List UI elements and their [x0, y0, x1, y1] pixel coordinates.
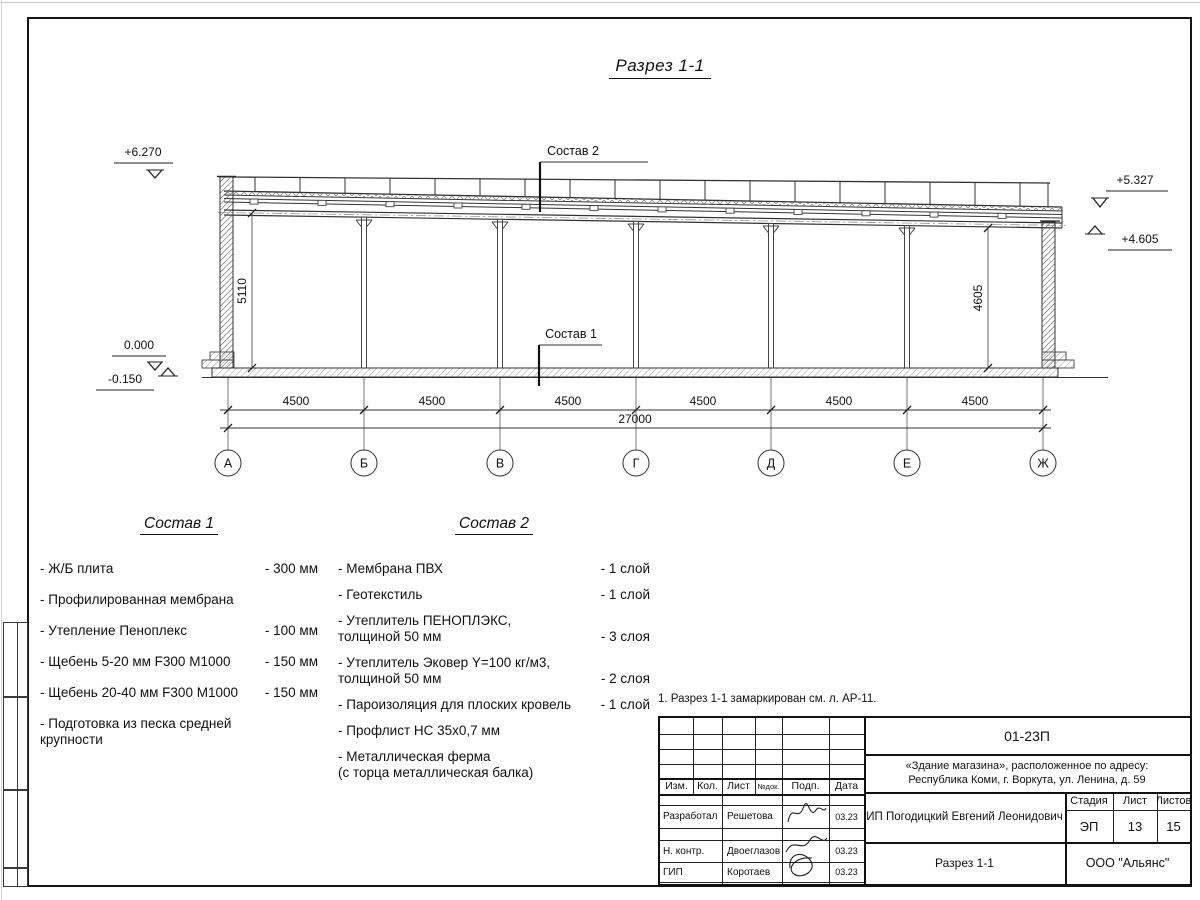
company-name: ООО "Альянс" — [1065, 842, 1190, 884]
col-data: Дата — [829, 778, 864, 794]
row-role: Разработал — [660, 805, 725, 828]
list-item: - Металлическая ферма (с торца металличе… — [338, 749, 650, 781]
dim-bay: 4500 — [690, 394, 717, 408]
columns — [356, 217, 915, 368]
drawing-sheet: Разрез 1-1 — [0, 0, 1200, 900]
list-item: - Ж/Б плита- 300 мм — [40, 561, 318, 577]
height-dimensions: 5110 4605 — [235, 209, 992, 372]
margin-box — [3, 868, 28, 887]
leader-label-sostav2: Состав 2 — [547, 144, 599, 158]
list-item: - Утепление Пеноплекс- 100 мм — [40, 623, 318, 639]
stage-value: ЭП — [1065, 810, 1113, 842]
dim-total: 27000 — [618, 412, 652, 426]
dim-right-height: 4605 — [971, 284, 985, 311]
col-list: Лист — [722, 778, 755, 794]
dim-bay: 4500 — [826, 394, 853, 408]
list-item: - Профилированная мембрана — [40, 592, 318, 608]
dim-left-height: 5110 — [235, 278, 249, 304]
row-date: 03.23 — [829, 805, 864, 828]
dim-bay: 4500 — [962, 394, 989, 408]
col-kol: Кол. — [693, 778, 722, 794]
row-name: Двоеглазов — [724, 840, 785, 862]
list-item: - Щебень 5-20 мм F300 М1000- 150 мм — [40, 654, 318, 670]
row-role: Н. контр. — [660, 840, 725, 862]
axis-label: В — [496, 457, 504, 471]
list-item: - Подготовка из песка средней крупности — [40, 716, 318, 748]
object-address-line2: Республика Коми, г. Воркута, ул. Ленина,… — [908, 773, 1145, 788]
list-item: - Геотекстиль- 1 слой — [338, 587, 650, 603]
roof-deck — [218, 191, 1066, 228]
client-name: ИП Погодицкий Евгений Леонидович — [864, 792, 1065, 842]
list-item: - Утеплитель ПЕНОПЛЭКС, толщиной 50 мм- … — [338, 613, 650, 645]
dim-bay: 4500 — [555, 394, 582, 408]
axis-label: Д — [767, 457, 776, 471]
list-item: - Утеплитель Эковер Y=100 кг/м3, толщино… — [338, 655, 650, 687]
axis-label: Е — [903, 457, 911, 471]
svg-text:+4.605: +4.605 — [1121, 232, 1158, 246]
sheets-label: Листов — [1157, 792, 1190, 810]
axis-label: Г — [633, 457, 640, 471]
elevation-ground: -0.150 — [96, 368, 178, 390]
col-izm: Изм. — [660, 778, 693, 794]
sheets-value: 15 — [1157, 810, 1190, 842]
margin-box — [3, 697, 28, 790]
row-name: Коротаев — [724, 862, 785, 882]
axis-label: А — [224, 457, 233, 471]
row-role: ГИП — [660, 862, 725, 882]
list-item: - Щебень 20-40 мм F300 М1000- 150 мм — [40, 685, 318, 701]
elevation-floor: 0.000 — [112, 338, 166, 370]
axis-bubbles: А Б В Г Д Е Ж — [215, 450, 1056, 476]
elevation-roof-right: +5.327 — [1091, 173, 1168, 207]
composition-1-title: Состав 1 — [40, 516, 318, 535]
row-date: 03.23 — [829, 862, 864, 882]
dim-bay: 4500 — [283, 394, 310, 408]
svg-text:+6.270: +6.270 — [124, 145, 161, 159]
dim-bay: 4500 — [419, 394, 446, 408]
leader-label-sostav1: Состав 1 — [545, 327, 597, 341]
margin-box — [3, 622, 28, 697]
list-item: - Мембрана ПВХ- 1 слой — [338, 561, 650, 577]
sheet-title: Разрез 1-1 — [864, 842, 1065, 884]
sheet-value: 13 — [1113, 810, 1157, 842]
elevation-truss-right: +4.605 — [1085, 226, 1172, 250]
svg-text:-0.150: -0.150 — [108, 372, 142, 386]
col-ndok: №док. — [755, 778, 782, 794]
object-address-line1: «Здание магазина», расположенное по адре… — [906, 759, 1149, 774]
svg-text:+5.327: +5.327 — [1116, 173, 1153, 187]
sheet-note: 1. Разрез 1-1 замаркирован см. л. АР-11. — [658, 693, 876, 705]
stage-label: Стадия — [1065, 792, 1113, 810]
axis-label: Б — [360, 457, 368, 471]
composition-list-1: Состав 1 - Ж/Б плита- 300 мм - Профилиро… — [40, 516, 318, 763]
axis-label: Ж — [1037, 457, 1049, 471]
signature-scribbles — [782, 794, 829, 884]
bay-dimensions: 4500 4500 4500 4500 4500 4500 27000 — [220, 394, 1051, 432]
row-date: 03.23 — [829, 840, 864, 862]
doc-number: 01-23П — [864, 718, 1190, 754]
margin-box — [3, 790, 28, 868]
svg-text:0.000: 0.000 — [124, 338, 154, 352]
title-block: Изм. Кол. Лист №док. Подп. Дата Разработ… — [658, 716, 1192, 886]
elevation-roof-left: +6.270 — [114, 145, 173, 178]
row-name: Решетова — [724, 805, 785, 828]
list-item: - Пароизоляция для плоских кровель- 1 сл… — [338, 697, 650, 713]
section-drawing: 4500 4500 4500 4500 4500 4500 27000 А Б … — [0, 0, 1200, 520]
sheet-label: Лист — [1113, 792, 1157, 810]
floor-slab — [202, 368, 1108, 378]
list-item: - Профлист НС 35х0,7 мм — [338, 723, 650, 739]
col-podp: Подп. — [782, 778, 829, 794]
composition-2-title: Состав 2 — [338, 516, 650, 535]
composition-list-2: Состав 2 - Мембрана ПВХ- 1 слой - Геотек… — [338, 516, 650, 791]
